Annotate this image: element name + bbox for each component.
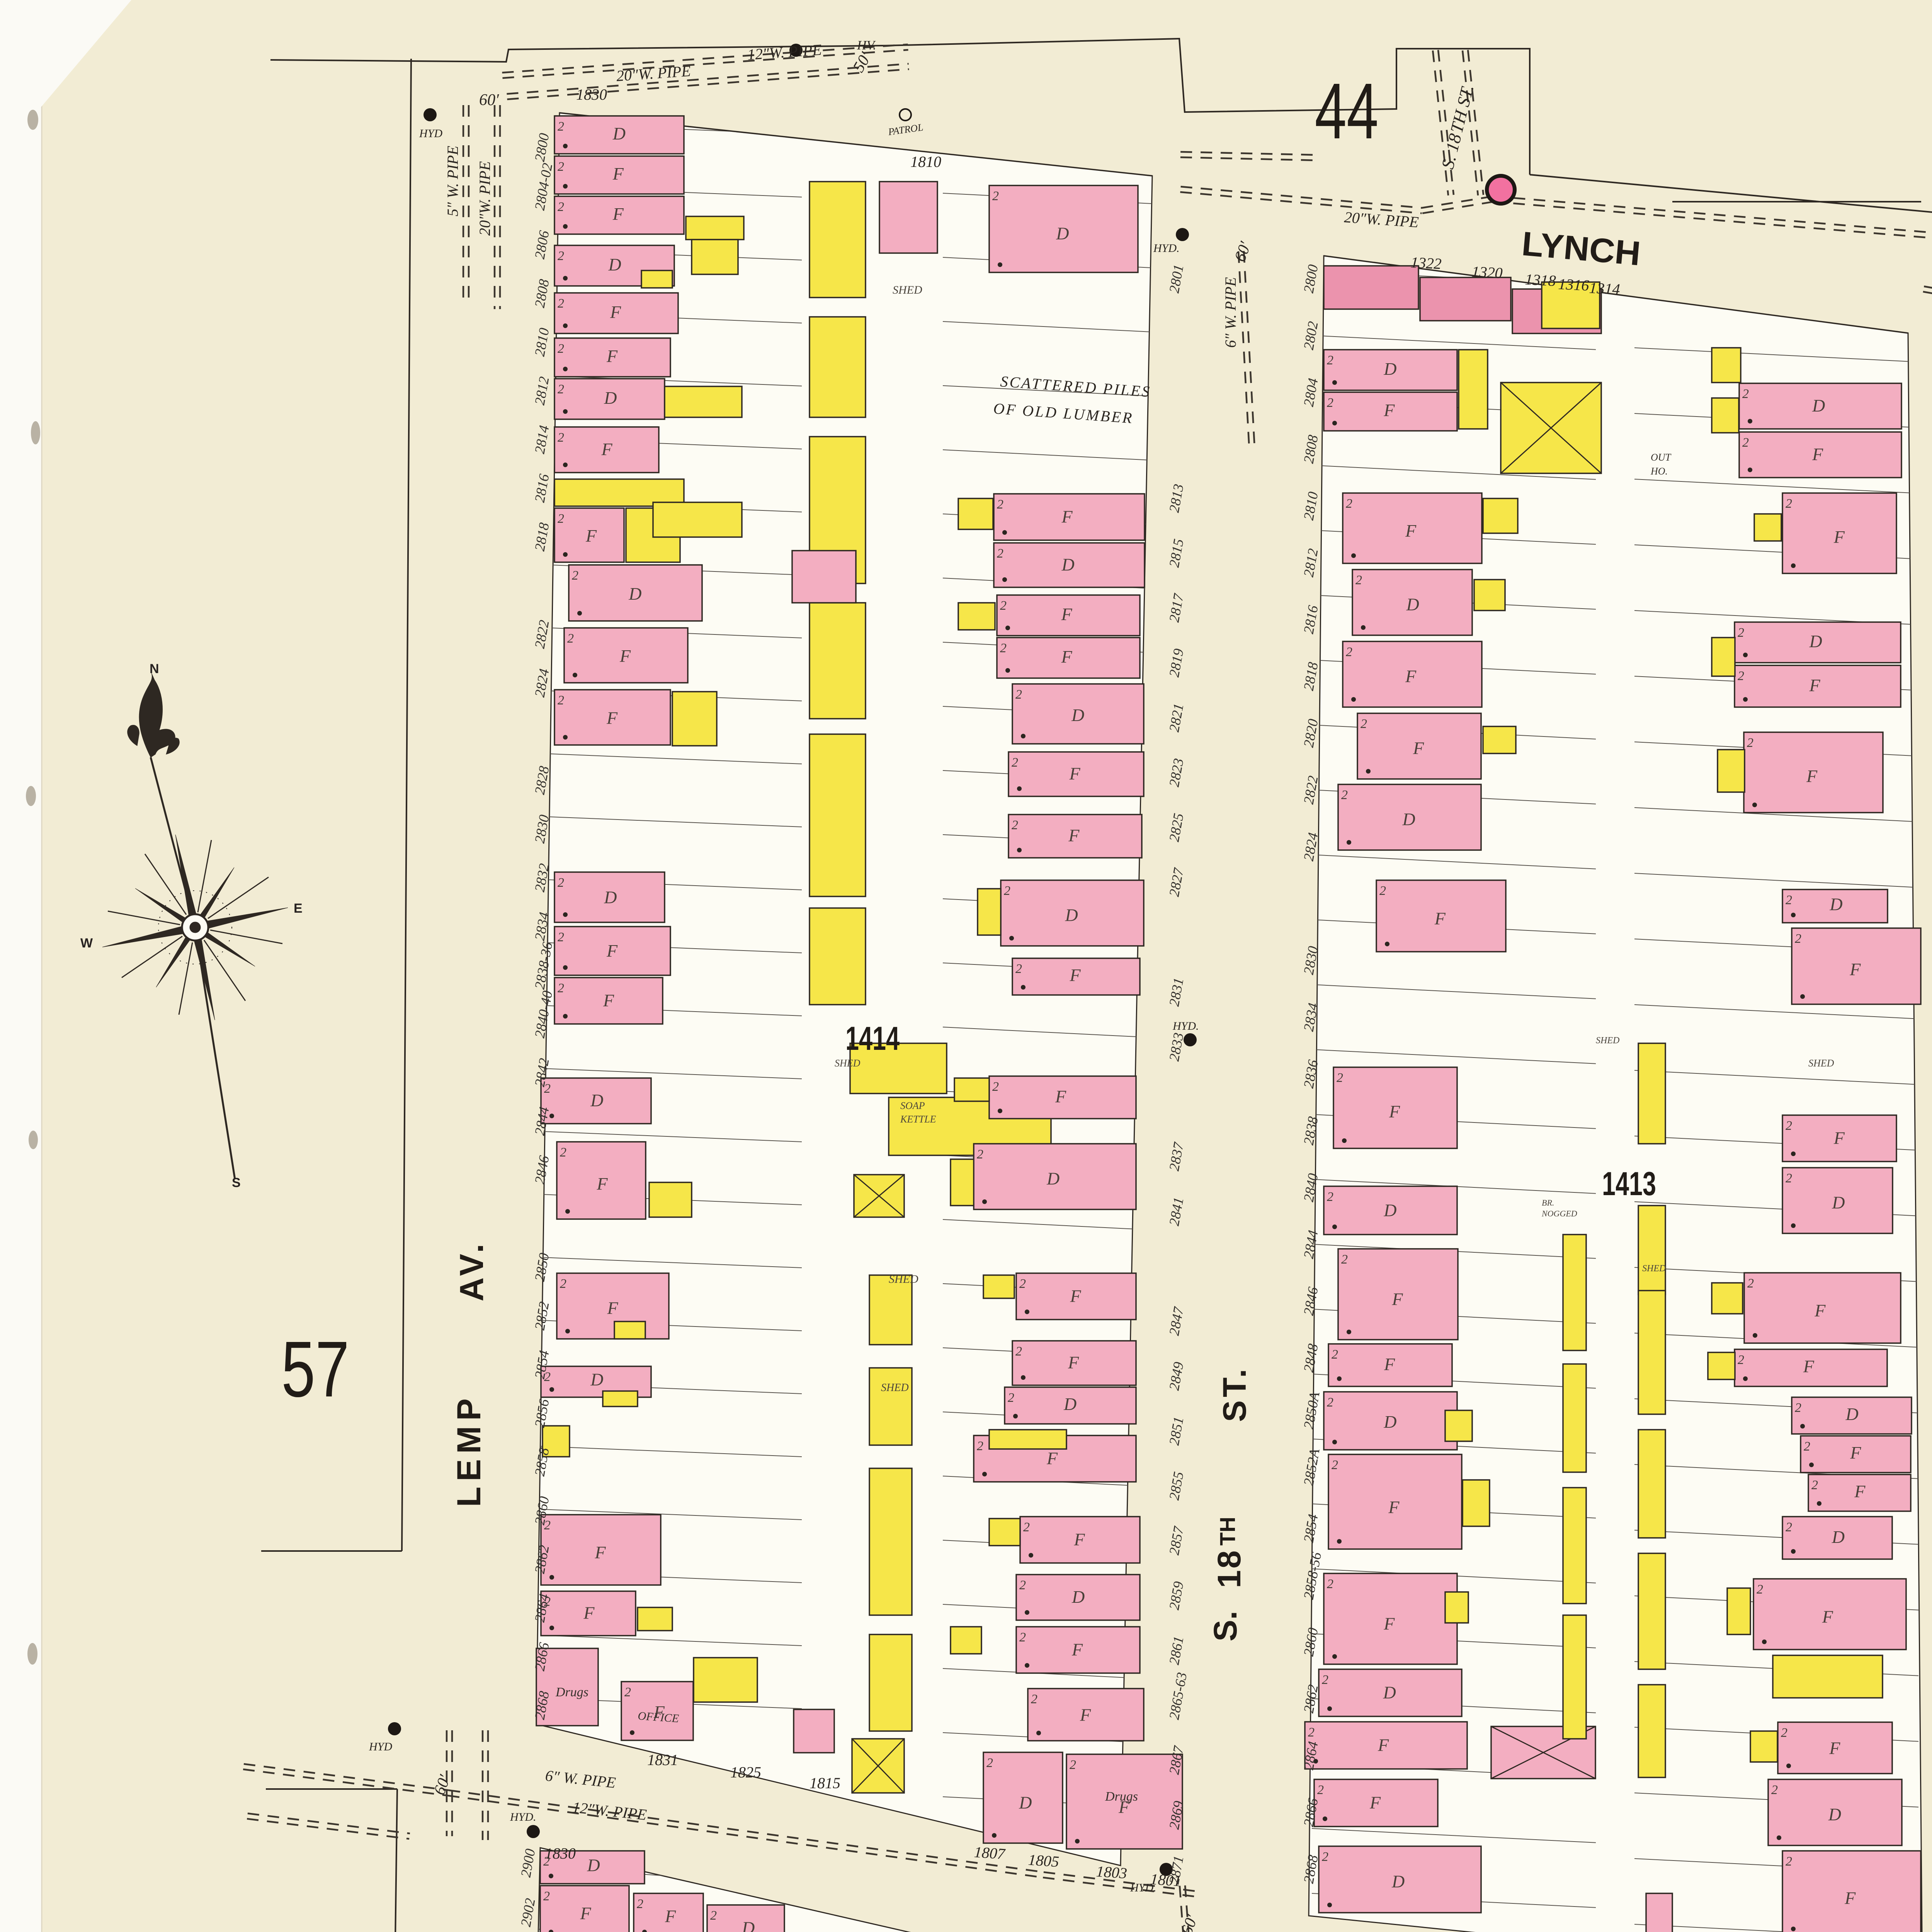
svg-text:2: 2 xyxy=(1747,736,1753,750)
svg-text:D: D xyxy=(587,1855,600,1875)
svg-text:2: 2 xyxy=(1771,1783,1778,1797)
svg-text:D: D xyxy=(1812,396,1825,415)
svg-text:2: 2 xyxy=(624,1685,631,1699)
svg-text:1805: 1805 xyxy=(1027,1851,1060,1870)
svg-text:1316: 1316 xyxy=(1558,275,1590,294)
svg-text:D: D xyxy=(1383,1412,1396,1432)
svg-text:2: 2 xyxy=(1341,1252,1348,1267)
svg-text:1815: 1815 xyxy=(810,1774,840,1792)
svg-text:D: D xyxy=(1402,809,1415,829)
svg-text:HYD.: HYD. xyxy=(510,1811,536,1823)
svg-text:F: F xyxy=(1854,1481,1866,1501)
svg-text:2: 2 xyxy=(1742,435,1749,450)
svg-text:D: D xyxy=(1063,1394,1077,1414)
svg-text:F: F xyxy=(1384,1354,1395,1374)
svg-text:N: N xyxy=(150,662,159,676)
svg-text:2: 2 xyxy=(558,249,564,263)
svg-text:2: 2 xyxy=(558,512,564,526)
svg-text:W: W xyxy=(80,936,93,951)
svg-text:F: F xyxy=(1844,1888,1856,1908)
svg-text:OUT: OUT xyxy=(1651,452,1672,463)
svg-text:2: 2 xyxy=(977,1439,983,1453)
svg-text:LEMP: LEMP xyxy=(451,1393,488,1507)
svg-text:F: F xyxy=(1812,444,1823,464)
svg-text:F: F xyxy=(610,302,621,322)
svg-text:SHED: SHED xyxy=(889,1273,918,1286)
svg-text:2: 2 xyxy=(986,1756,993,1770)
svg-text:2: 2 xyxy=(1322,1673,1328,1687)
svg-text:HYD: HYD xyxy=(419,127,442,140)
svg-text:HV.: HV. xyxy=(857,38,876,53)
svg-text:SOAP: SOAP xyxy=(900,1100,925,1111)
svg-text:2: 2 xyxy=(1804,1439,1810,1454)
svg-text:2: 2 xyxy=(1015,1344,1022,1359)
svg-text:2: 2 xyxy=(1341,788,1348,802)
svg-text:F: F xyxy=(665,1906,676,1926)
svg-text:F: F xyxy=(1405,521,1417,541)
svg-text:D: D xyxy=(628,584,641,604)
svg-text:2: 2 xyxy=(543,1889,550,1903)
svg-text:2: 2 xyxy=(1346,645,1352,659)
svg-text:D: D xyxy=(1829,894,1842,914)
svg-text:2: 2 xyxy=(1322,1850,1328,1864)
svg-text:Drugs: Drugs xyxy=(1105,1789,1138,1804)
svg-text:1825: 1825 xyxy=(730,1764,761,1781)
svg-text:5″ W. PIPE: 5″ W. PIPE xyxy=(444,146,461,216)
svg-text:F: F xyxy=(1369,1793,1381,1813)
svg-text:2: 2 xyxy=(1308,1725,1315,1740)
svg-text:D: D xyxy=(612,124,626,143)
svg-text:1320: 1320 xyxy=(1471,263,1503,282)
svg-text:2: 2 xyxy=(1786,1171,1792,1185)
svg-text:2: 2 xyxy=(1786,497,1792,511)
svg-text:2: 2 xyxy=(1327,353,1333,367)
svg-text:2: 2 xyxy=(997,546,1003,561)
svg-text:F: F xyxy=(1829,1738,1840,1758)
svg-text:D: D xyxy=(1845,1404,1859,1424)
svg-text:2: 2 xyxy=(1811,1478,1818,1492)
svg-text:D: D xyxy=(1383,359,1396,379)
svg-text:Drugs: Drugs xyxy=(555,1685,588,1699)
svg-text:2: 2 xyxy=(1781,1726,1787,1740)
svg-text:2: 2 xyxy=(710,1908,717,1923)
svg-text:F: F xyxy=(1383,400,1395,420)
svg-text:D: D xyxy=(1071,705,1084,725)
svg-text:HYD.: HYD. xyxy=(1153,242,1180,255)
svg-text:F: F xyxy=(603,990,614,1010)
svg-text:S.: S. xyxy=(1207,1611,1243,1641)
svg-text:S: S xyxy=(232,1175,241,1190)
svg-text:F: F xyxy=(1074,1529,1085,1549)
svg-text:2: 2 xyxy=(1738,1353,1744,1367)
svg-text:D: D xyxy=(1828,1804,1841,1824)
svg-text:1414: 1414 xyxy=(845,1020,900,1057)
svg-text:2: 2 xyxy=(1023,1520,1030,1534)
svg-text:2: 2 xyxy=(1738,669,1744,683)
svg-text:F: F xyxy=(1069,764,1081,783)
svg-text:2: 2 xyxy=(558,930,564,944)
svg-text:E: E xyxy=(294,901,303,916)
svg-text:2: 2 xyxy=(1019,1578,1026,1592)
svg-text:D: D xyxy=(590,1370,603,1389)
svg-text:2: 2 xyxy=(1012,818,1018,832)
svg-text:D: D xyxy=(590,1090,603,1110)
svg-text:F: F xyxy=(1833,1128,1845,1148)
svg-text:2: 2 xyxy=(1327,1577,1333,1591)
svg-text:2: 2 xyxy=(637,1897,643,1911)
svg-text:2: 2 xyxy=(1327,1190,1333,1204)
svg-text:2: 2 xyxy=(1346,497,1352,511)
svg-text:1803: 1803 xyxy=(1095,1862,1128,1882)
svg-text:F: F xyxy=(601,439,613,459)
svg-text:2: 2 xyxy=(1379,884,1386,898)
svg-text:F: F xyxy=(1080,1705,1091,1725)
svg-text:57: 57 xyxy=(281,1325,349,1413)
svg-text:6″ W. PIPE: 6″ W. PIPE xyxy=(1222,277,1239,348)
svg-text:2: 2 xyxy=(558,342,564,356)
svg-text:D: D xyxy=(604,388,617,408)
svg-text:2: 2 xyxy=(977,1147,983,1162)
svg-text:2: 2 xyxy=(558,200,564,214)
svg-text:D: D xyxy=(1406,594,1419,614)
svg-text:SHED: SHED xyxy=(1642,1264,1666,1274)
svg-text:F: F xyxy=(1061,507,1073,526)
svg-text:1801: 1801 xyxy=(1150,1870,1182,1889)
svg-text:2: 2 xyxy=(1004,884,1010,898)
svg-text:2: 2 xyxy=(560,1145,566,1160)
svg-text:2: 2 xyxy=(1355,573,1362,587)
svg-text:F: F xyxy=(1803,1357,1815,1376)
svg-text:D: D xyxy=(1832,1192,1845,1212)
svg-text:1322: 1322 xyxy=(1410,253,1442,272)
svg-text:F: F xyxy=(1849,959,1861,979)
svg-text:D: D xyxy=(1383,1201,1396,1220)
svg-text:2: 2 xyxy=(558,876,564,890)
svg-text:2: 2 xyxy=(1000,599,1007,613)
svg-text:2: 2 xyxy=(560,1277,566,1291)
svg-text:2: 2 xyxy=(558,160,564,174)
svg-text:F: F xyxy=(1070,1286,1082,1306)
svg-text:F: F xyxy=(1413,738,1424,758)
svg-text:KETTLE: KETTLE xyxy=(900,1114,936,1125)
svg-text:2: 2 xyxy=(558,296,564,311)
svg-text:ST.: ST. xyxy=(1216,1366,1253,1422)
svg-text:NOGGED: NOGGED xyxy=(1541,1209,1577,1218)
svg-text:2: 2 xyxy=(992,1080,999,1094)
svg-text:F: F xyxy=(1068,825,1080,845)
svg-text:F: F xyxy=(1389,1102,1400,1121)
svg-text:2: 2 xyxy=(1738,626,1744,640)
svg-text:2: 2 xyxy=(1317,1783,1324,1797)
svg-text:F: F xyxy=(1068,1352,1079,1372)
svg-text:2: 2 xyxy=(1327,1395,1333,1410)
svg-text:2: 2 xyxy=(558,693,564,707)
svg-text:F: F xyxy=(585,526,597,546)
svg-text:2: 2 xyxy=(1332,1347,1338,1362)
svg-text:1807: 1807 xyxy=(973,1843,1006,1863)
svg-text:F: F xyxy=(1070,965,1081,985)
svg-text:F: F xyxy=(1434,909,1446,929)
svg-text:F: F xyxy=(1392,1289,1403,1309)
svg-text:2: 2 xyxy=(1008,1391,1014,1405)
svg-text:2: 2 xyxy=(1332,1458,1338,1472)
svg-text:HO.: HO. xyxy=(1650,466,1668,477)
svg-text:HYD.: HYD. xyxy=(1172,1020,1199,1032)
svg-text:2: 2 xyxy=(558,430,564,445)
svg-text:2: 2 xyxy=(1795,1401,1801,1415)
svg-text:D: D xyxy=(1061,554,1075,574)
svg-text:SHED: SHED xyxy=(1596,1036,1619,1046)
svg-text:SHED: SHED xyxy=(1808,1058,1834,1069)
svg-text:F: F xyxy=(606,941,618,961)
svg-text:F: F xyxy=(612,164,624,184)
svg-text:F: F xyxy=(1383,1614,1395,1634)
svg-text:2: 2 xyxy=(1361,717,1367,731)
svg-text:2: 2 xyxy=(1015,962,1022,976)
svg-text:2: 2 xyxy=(1015,687,1022,702)
svg-text:1314: 1314 xyxy=(1589,279,1621,298)
svg-text:2: 2 xyxy=(1000,641,1007,655)
svg-text:F: F xyxy=(597,1174,608,1194)
svg-text:F: F xyxy=(1061,647,1073,667)
svg-text:2: 2 xyxy=(997,497,1003,512)
svg-text:SHED: SHED xyxy=(881,1382,909,1394)
svg-text:F: F xyxy=(607,1298,619,1318)
svg-text:F: F xyxy=(1071,1639,1083,1659)
svg-text:D: D xyxy=(1019,1793,1032,1813)
svg-text:D: D xyxy=(742,1918,755,1932)
svg-text:1810: 1810 xyxy=(910,153,941,170)
svg-text:D: D xyxy=(608,255,621,274)
svg-text:2: 2 xyxy=(992,189,999,203)
svg-text:2: 2 xyxy=(1786,1119,1792,1133)
svg-text:F: F xyxy=(612,204,624,224)
svg-text:1831: 1831 xyxy=(647,1751,678,1769)
svg-text:D: D xyxy=(1809,631,1822,651)
svg-text:2: 2 xyxy=(558,119,564,134)
svg-text:HYD: HYD xyxy=(369,1740,392,1753)
svg-text:2: 2 xyxy=(1012,755,1018,770)
svg-text:2: 2 xyxy=(572,568,578,583)
svg-text:2: 2 xyxy=(1031,1692,1037,1706)
svg-text:2: 2 xyxy=(1070,1758,1076,1772)
svg-text:2: 2 xyxy=(567,631,574,646)
svg-text:2: 2 xyxy=(1786,1520,1792,1534)
svg-text:2: 2 xyxy=(1757,1582,1763,1597)
svg-text:2: 2 xyxy=(1327,396,1333,410)
svg-text:F: F xyxy=(1046,1448,1058,1468)
svg-text:2: 2 xyxy=(1786,893,1792,907)
svg-text:SHED: SHED xyxy=(893,284,922,296)
svg-text:F: F xyxy=(1388,1497,1400,1517)
svg-text:D: D xyxy=(1071,1587,1085,1607)
svg-text:18: 18 xyxy=(1211,1549,1247,1588)
svg-text:44: 44 xyxy=(1315,67,1379,155)
svg-text:SHED: SHED xyxy=(835,1058,861,1069)
svg-text:2: 2 xyxy=(1337,1071,1343,1085)
svg-text:1413: 1413 xyxy=(1602,1165,1656,1202)
svg-text:1830: 1830 xyxy=(576,86,607,103)
svg-text:F: F xyxy=(1378,1735,1389,1755)
svg-text:AV.: AV. xyxy=(453,1240,490,1301)
svg-text:1318: 1318 xyxy=(1525,270,1556,289)
svg-text:20″W. PIPE: 20″W. PIPE xyxy=(476,161,493,236)
svg-text:F: F xyxy=(1850,1443,1861,1463)
svg-text:F: F xyxy=(1806,766,1818,786)
svg-text:F: F xyxy=(606,708,618,728)
svg-text:D: D xyxy=(1391,1872,1405,1891)
svg-text:F: F xyxy=(1061,604,1073,624)
svg-text:F: F xyxy=(595,1543,606,1562)
svg-text:TH: TH xyxy=(1215,1517,1240,1546)
svg-text:D: D xyxy=(1065,905,1078,925)
svg-text:2: 2 xyxy=(558,981,564,995)
svg-text:F: F xyxy=(580,1903,592,1923)
svg-text:F: F xyxy=(1822,1607,1833,1626)
svg-text:F: F xyxy=(1814,1301,1826,1320)
svg-text:F: F xyxy=(1055,1087,1066,1106)
svg-text:2: 2 xyxy=(1019,1277,1026,1291)
svg-text:D: D xyxy=(1383,1683,1396,1702)
svg-text:F: F xyxy=(619,646,631,666)
svg-text:60′: 60′ xyxy=(479,91,499,109)
svg-text:F: F xyxy=(1809,675,1821,695)
svg-text:BR.: BR. xyxy=(1542,1198,1554,1207)
svg-text:2: 2 xyxy=(1786,1854,1792,1869)
svg-text:F: F xyxy=(606,346,618,366)
svg-text:2: 2 xyxy=(1795,932,1801,946)
svg-text:1830: 1830 xyxy=(545,1845,576,1862)
svg-text:D: D xyxy=(1046,1168,1060,1188)
svg-text:2: 2 xyxy=(1019,1630,1026,1645)
svg-text:2: 2 xyxy=(1747,1276,1754,1291)
svg-text:F: F xyxy=(1405,666,1417,686)
svg-text:2: 2 xyxy=(558,382,564,396)
svg-text:D: D xyxy=(1056,224,1069,243)
svg-text:2: 2 xyxy=(1742,387,1749,401)
svg-text:F: F xyxy=(1833,527,1845,547)
svg-text:D: D xyxy=(1832,1527,1845,1547)
svg-text:F: F xyxy=(583,1603,595,1622)
svg-text:D: D xyxy=(604,888,617,907)
